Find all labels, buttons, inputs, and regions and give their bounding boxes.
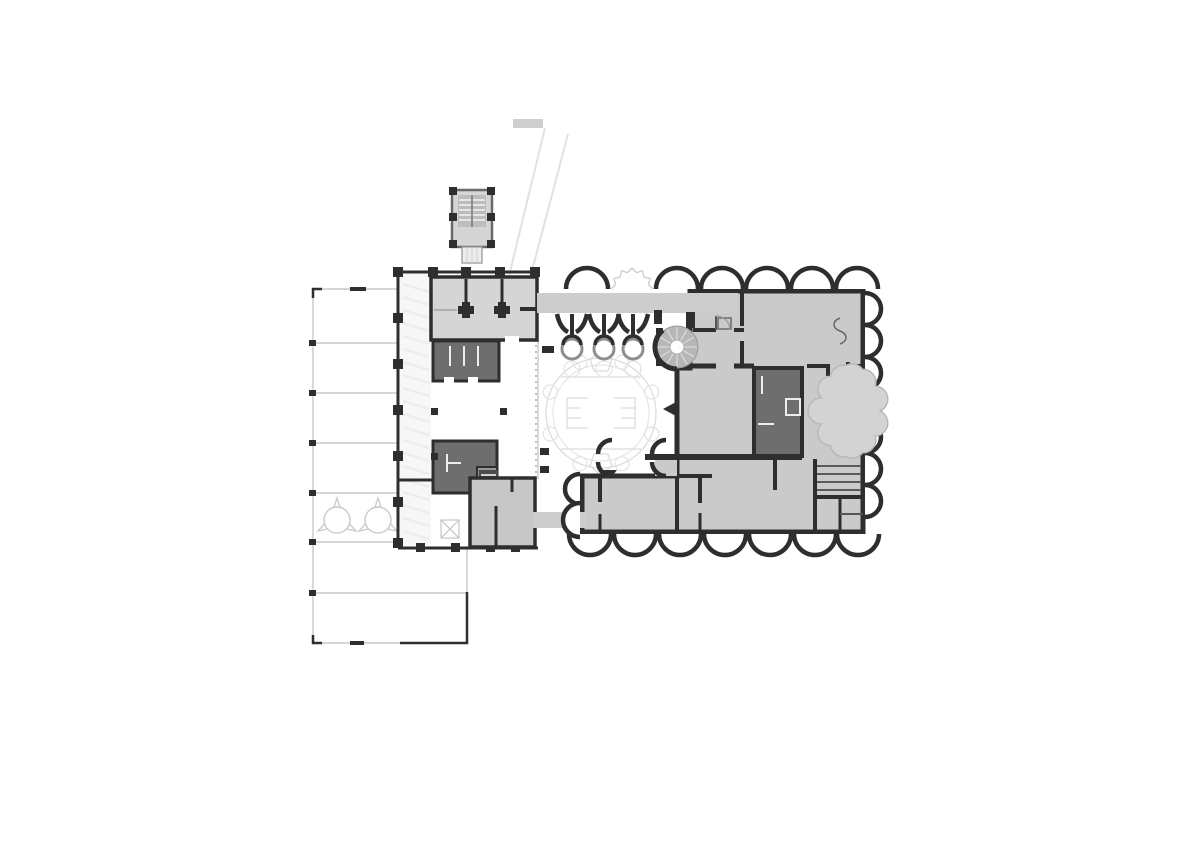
tree-symbol (318, 498, 356, 533)
arch-south (794, 534, 836, 555)
shaft-x-box (441, 520, 459, 538)
arch-east (865, 485, 881, 517)
arch-west (565, 474, 580, 504)
fountain-seat-west (567, 398, 588, 428)
floor-plan-svg (0, 0, 1200, 848)
door-opening (505, 336, 519, 343)
jamb (654, 310, 662, 324)
arch-north (566, 268, 608, 289)
south-room (470, 478, 535, 547)
canopy-column-dot (309, 340, 316, 346)
walkway-north (537, 293, 738, 313)
arch-north (836, 268, 878, 289)
ramp-cap (513, 119, 543, 128)
canopy-column-dot (309, 390, 316, 396)
diagonal-ramp-ghost (508, 119, 568, 282)
arch-east (865, 293, 881, 325)
arch-south (614, 534, 656, 555)
corner-tick (313, 289, 322, 298)
wet-room-upper (433, 341, 499, 383)
arch-north-ghost (611, 268, 653, 289)
jamb (542, 346, 554, 353)
tree-symbols (318, 498, 397, 533)
jamb (540, 448, 549, 455)
column-dot (431, 453, 438, 460)
fountain-seat-east (614, 398, 635, 428)
spiral-stair (654, 310, 698, 369)
spiral-stair-hub (670, 340, 684, 354)
corner-tick (313, 635, 322, 643)
door-arrow-west (663, 402, 676, 416)
arch-south (837, 534, 879, 555)
middle-building (393, 267, 554, 552)
column-dot (431, 408, 438, 415)
jamb (686, 312, 695, 328)
canopy-column-dot (309, 440, 316, 446)
canopy-column-dot (309, 539, 316, 545)
north-room-block (431, 277, 537, 343)
arch-east (865, 453, 881, 485)
dark-store-room (754, 368, 802, 456)
ornament-ghost-base (596, 361, 612, 377)
jamb (540, 466, 549, 473)
column-tick (350, 641, 364, 645)
ornament-column (557, 314, 587, 377)
tower-stub (462, 247, 482, 263)
floor-plan-page (0, 0, 1200, 848)
arch-north (746, 268, 788, 289)
arch-south (659, 534, 701, 555)
arch-north (656, 268, 698, 289)
column-dot (500, 408, 507, 415)
arch-south (704, 534, 746, 555)
arch-south (749, 534, 791, 555)
canopy-column-dot (309, 490, 316, 496)
arch-west (563, 503, 580, 537)
column-tick (350, 287, 366, 291)
arch-east (865, 325, 881, 357)
tree-symbol (359, 498, 397, 533)
stair-tower (449, 187, 495, 263)
arch-north (701, 268, 743, 289)
canopy-dark-edge (400, 592, 467, 643)
arch-north (791, 268, 833, 289)
